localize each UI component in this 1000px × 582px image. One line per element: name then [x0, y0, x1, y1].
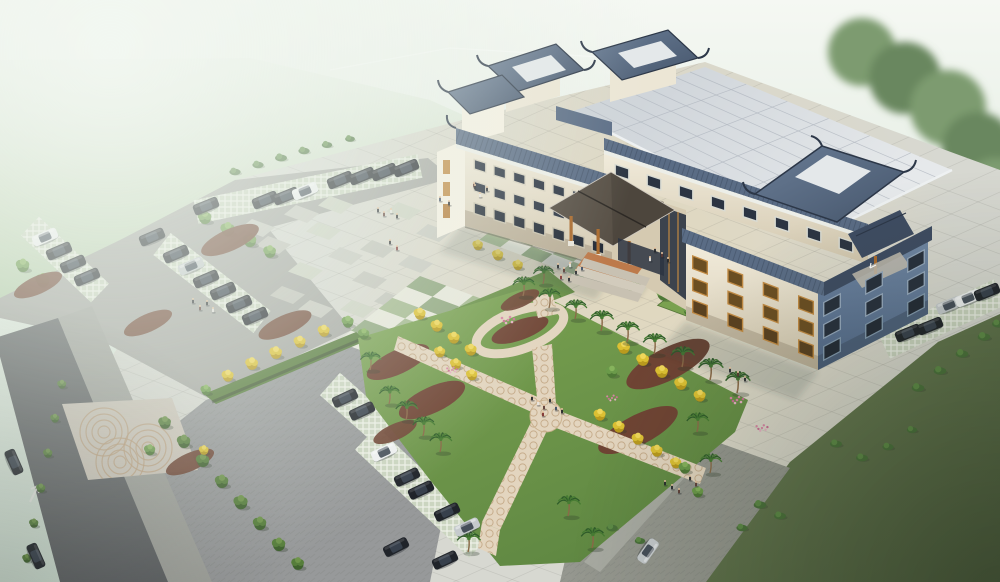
vignette-bottom-left: [0, 0, 1000, 582]
atmosphere: [0, 0, 1000, 582]
scene-canvas: [0, 0, 1000, 582]
architectural-rendering: [0, 0, 1000, 582]
